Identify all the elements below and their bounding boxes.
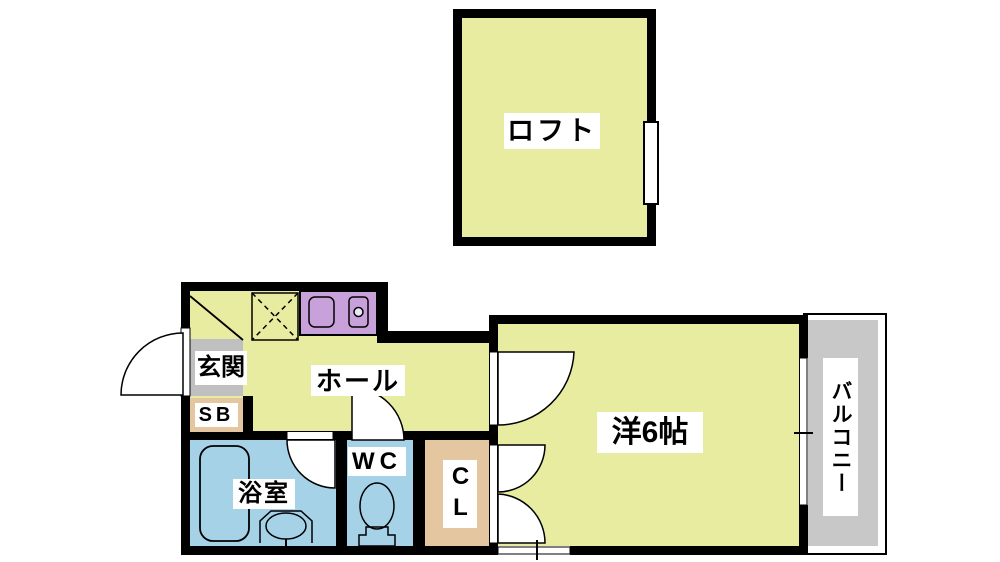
room-door-opening — [490, 352, 498, 425]
kitchen-counter — [300, 291, 377, 335]
balcony-label: バルコニー — [823, 358, 858, 516]
loft-label: ロフト — [504, 113, 600, 149]
shoe-box-label: SB — [195, 403, 238, 427]
loft-window — [644, 122, 658, 204]
bathroom-door-opening — [287, 432, 333, 440]
wc-label: WC — [348, 447, 406, 476]
hall-label: ホール — [311, 365, 405, 396]
entrance-label: 玄関 — [195, 351, 247, 385]
floorplan: ロフト 玄関 SB ホール 浴室 WC CL 洋6帖 バルコニー — [0, 0, 1000, 562]
bathroom-label: 浴室 — [233, 479, 295, 509]
entry-door — [121, 333, 183, 395]
kitchen-burner-icon — [354, 308, 363, 317]
closet-label: CL — [443, 460, 477, 528]
closet-opening — [490, 445, 498, 543]
western-room-label: 洋6帖 — [597, 412, 703, 453]
basin-bowl — [266, 513, 306, 539]
